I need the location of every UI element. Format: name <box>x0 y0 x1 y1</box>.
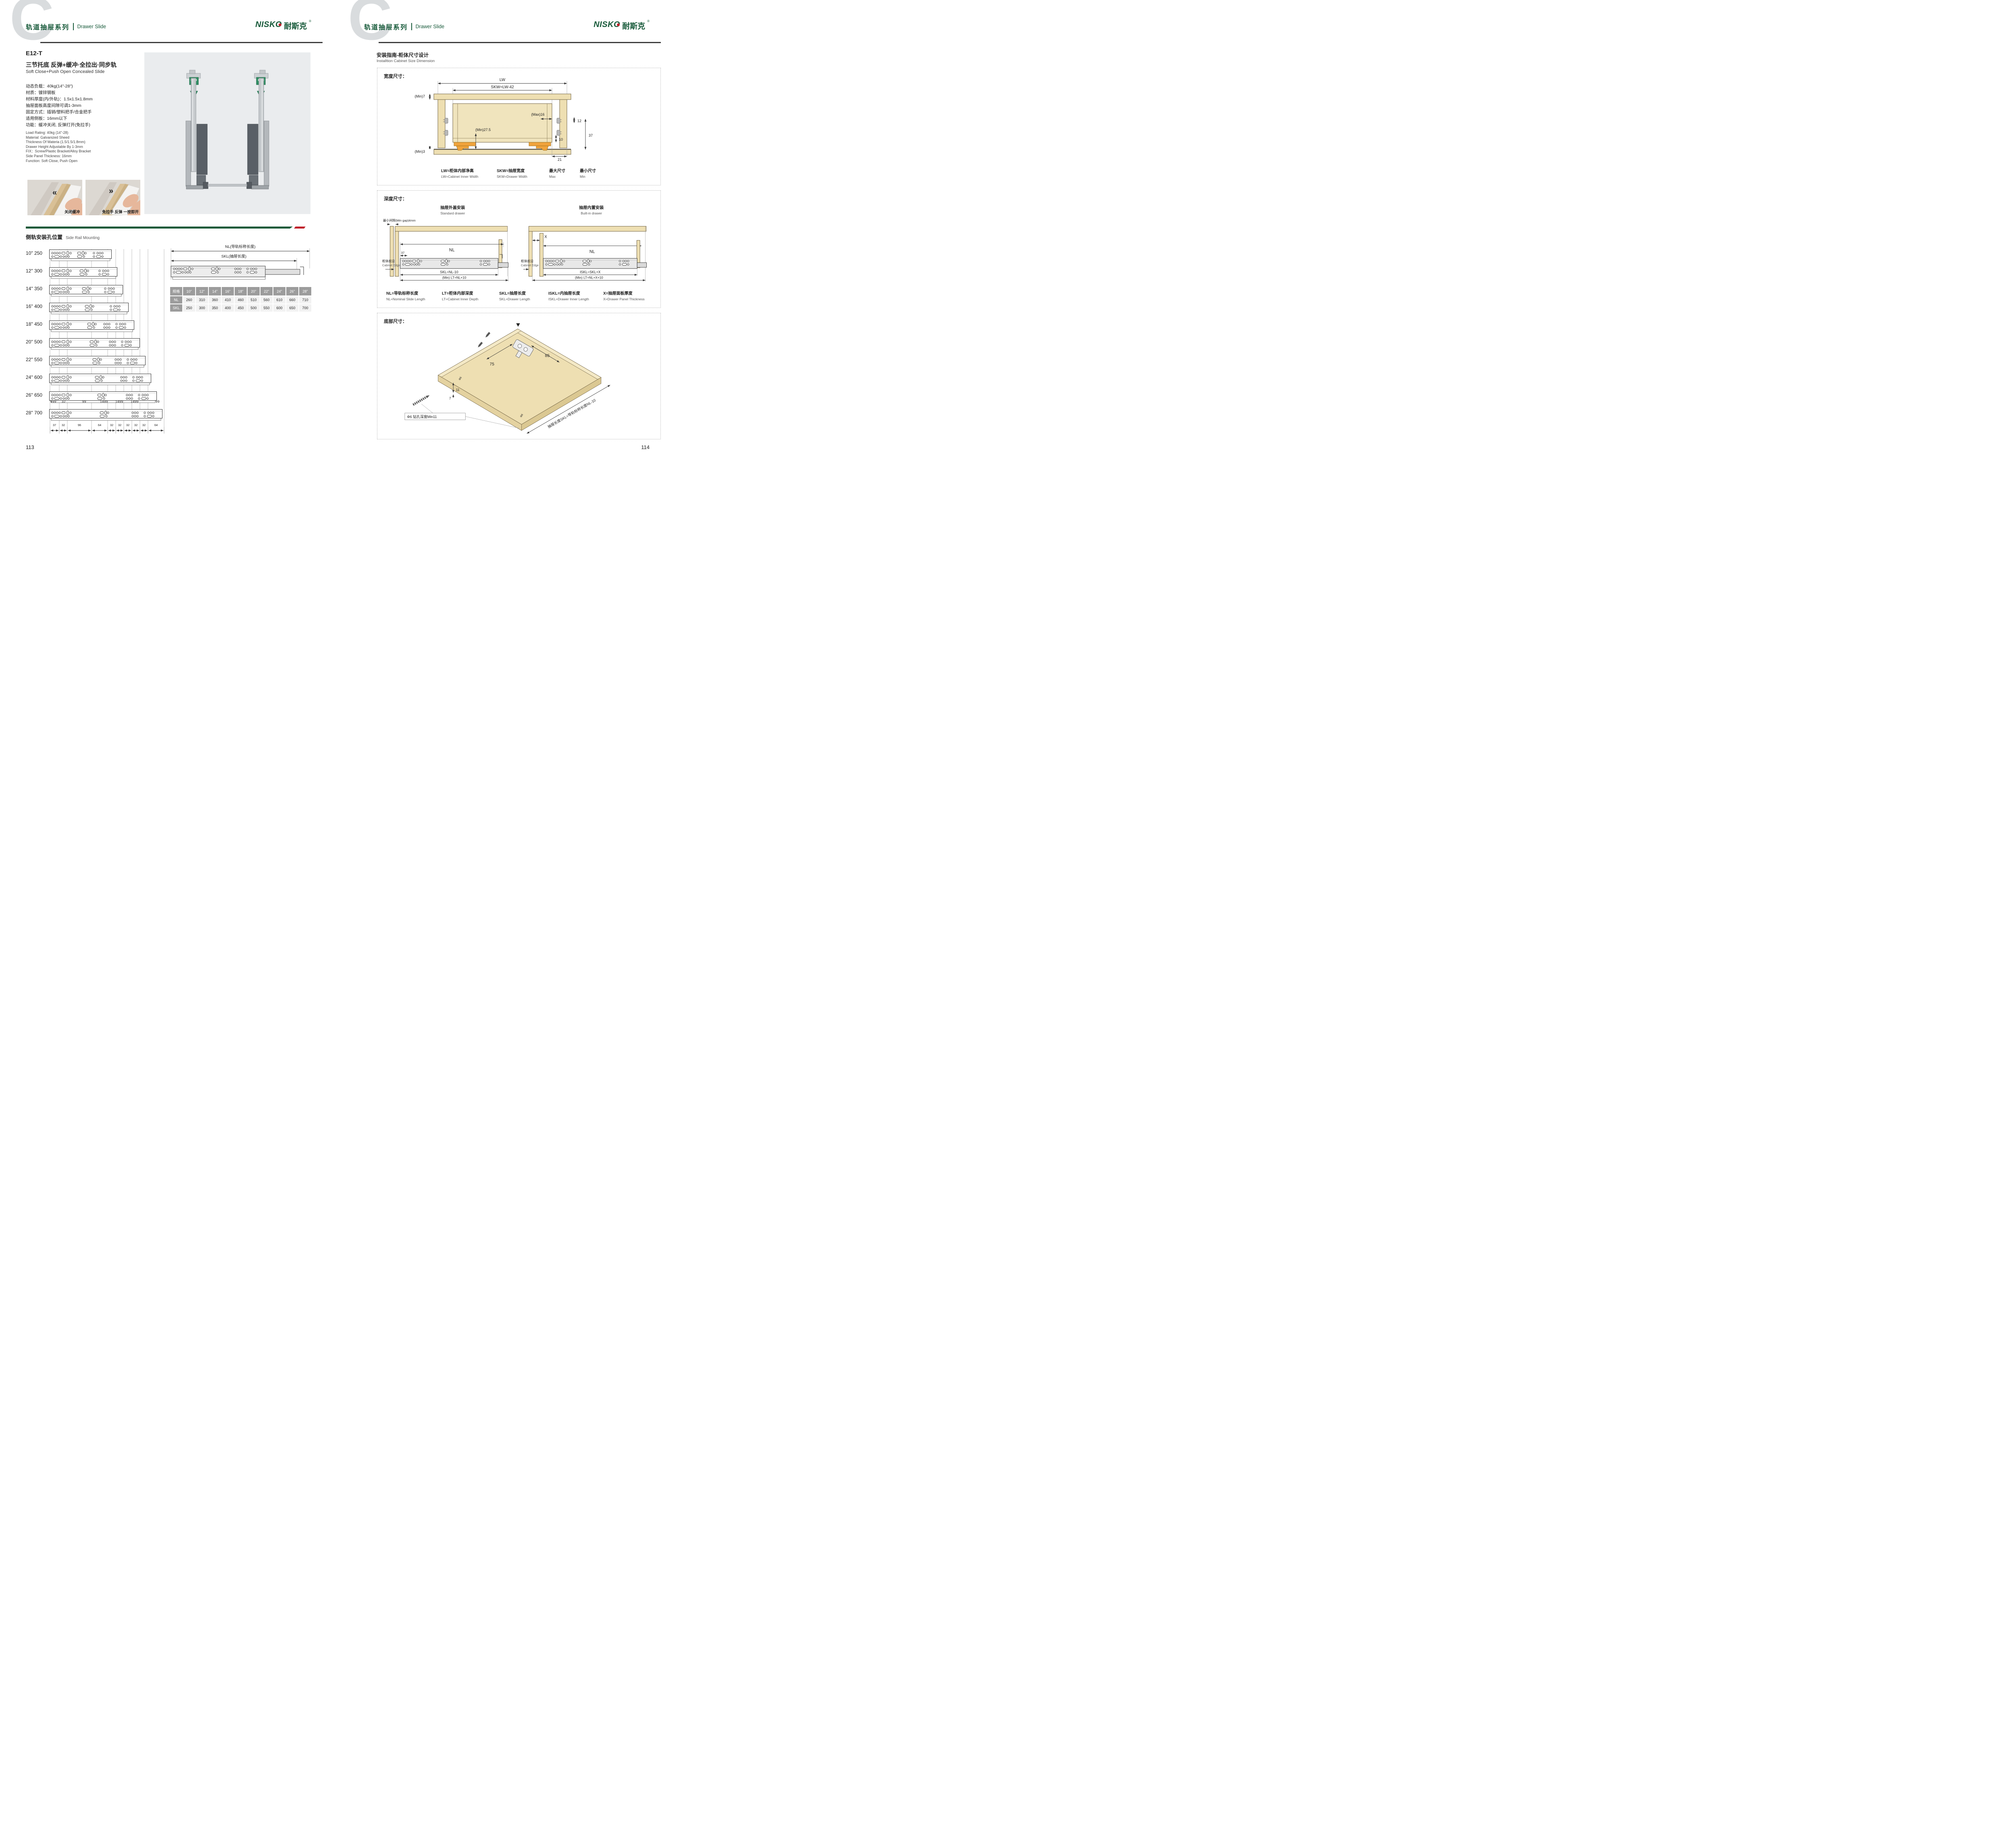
rail-row: 16" 400 <box>26 300 47 316</box>
series-title-en: Drawer Slide <box>77 24 106 29</box>
section-divider-green <box>26 227 293 229</box>
header-series: 轨道抽屉系列 Drawer Slide <box>364 22 444 31</box>
photo-push-open: » 免拉手 反弹 一按即开 <box>85 180 140 215</box>
chevron-left-icon: « <box>52 188 57 197</box>
brand-logo-text: NISKO <box>255 20 282 29</box>
side-rail-title: 侧轨安装孔位置 Side Rail Mounting <box>26 233 100 241</box>
product-name-cn: 三节托底 反弹+缓冲·全拉出·同步轨 <box>26 60 117 69</box>
product-photo <box>144 52 310 214</box>
page-right: C 轨道抽屉系列 Drawer Slide NISKO 耐斯克 ® 安装指南-柜… <box>338 0 676 462</box>
svg-text:7: 7 <box>449 396 451 400</box>
svg-text:32: 32 <box>142 423 146 427</box>
series-title-en: Drawer Slide <box>416 24 445 29</box>
svg-text:Built-in drawer: Built-in drawer <box>581 212 602 215</box>
svg-text:NL: NL <box>589 249 595 254</box>
side-rail-diagram: 10" 250 12" 300 14" 350 16" 400 18" 450 … <box>26 247 171 439</box>
rail-row: 12" 300 <box>26 264 47 281</box>
rail-row: 26" 650 <box>26 389 47 405</box>
svg-text:32: 32 <box>62 423 65 427</box>
depth-size-label: 深度尺寸： <box>384 196 407 202</box>
width-size-box: 宽度尺寸： LW SKW=LW-42 <box>377 68 661 185</box>
header-divider <box>411 23 412 30</box>
direction-arrow-icon <box>516 323 520 327</box>
catalog-spread: C 轨道抽屉系列 Drawer Slide NISKO 耐斯克 ® E12-T … <box>0 0 676 462</box>
svg-text:柜体前沿: 柜体前沿 <box>521 259 533 263</box>
standard-drawer-diagram: 抽屉外盖安装 Standard drawer 最小间隙(Min gap)4mm … <box>382 204 515 284</box>
svg-text:Standard drawer: Standard drawer <box>440 212 465 215</box>
header-rule <box>379 42 661 43</box>
svg-text:10: 10 <box>559 137 563 141</box>
svg-text:37: 37 <box>589 133 593 137</box>
page-number: 114 <box>641 444 650 450</box>
size-spec-table: 规格 10"12" 14"16" 18"20" 22"24" 26"28" NL… <box>169 286 312 312</box>
header-series: 轨道抽屉系列 Drawer Slide <box>26 22 106 31</box>
svg-text:Cabinet Edge: Cabinet Edge <box>382 263 400 267</box>
depth-size-box: 深度尺寸： 抽屉外盖安装 Standard drawer 最小间隙(Min ga… <box>377 190 661 308</box>
bottom-dimensions: 37 32 96 64 32 32 32 32 32 64 <box>49 423 170 435</box>
header-divider <box>73 23 74 30</box>
rail-row: 20" 500 <box>26 335 47 352</box>
brand-logo: NISKO 耐斯克 ® <box>594 20 650 31</box>
page-left: C 轨道抽屉系列 Drawer Slide NISKO 耐斯克 ® E12-T … <box>0 0 338 462</box>
svg-text:SKW=LW-42: SKW=LW-42 <box>491 85 514 89</box>
width-diagram: LW SKW=LW-42 <box>377 77 659 162</box>
builtin-drawer-diagram: 抽屉内置安装 Built-in drawer X NL ISKL= <box>521 204 654 284</box>
photo-caption: 关闭缓冲 <box>65 210 80 214</box>
svg-text:32: 32 <box>126 423 129 427</box>
svg-text:32: 32 <box>118 423 121 427</box>
rail-row: 18" 450 <box>26 318 47 334</box>
bottom-size-box: 底部尺寸： 75 85 11 <box>377 313 661 439</box>
svg-text:64: 64 <box>154 423 158 427</box>
install-guide-title-cn: 安装指南-柜体尺寸设计 <box>377 51 429 58</box>
rail-row: 10" 250 <box>26 247 47 263</box>
specs-en: Load Rating: 40kg (14"-28) Material: Gal… <box>26 131 91 163</box>
svg-text:(Min) LT=NL+X+10: (Min) LT=NL+X+10 <box>575 276 603 279</box>
svg-text:LW: LW <box>500 78 506 82</box>
svg-text:ISKL=SKL+X: ISKL=SKL+X <box>580 270 601 274</box>
product-name-en: Soft Close+Push Open Concealed Slide <box>26 69 104 74</box>
svg-text:11: 11 <box>456 388 460 392</box>
svg-text:Φ6 钻孔深度Min11: Φ6 钻孔深度Min11 <box>407 414 437 419</box>
svg-text:SKL=NL-10: SKL=NL-10 <box>440 270 458 274</box>
registered-mark: ® <box>309 19 311 23</box>
svg-text:75: 75 <box>489 362 494 366</box>
svg-text:12: 12 <box>577 119 581 123</box>
svg-text:32: 32 <box>110 423 113 427</box>
svg-text:(Min)7: (Min)7 <box>414 94 425 98</box>
header-rule <box>40 42 323 43</box>
svg-text:64: 64 <box>98 423 101 427</box>
svg-text:(Max)16: (Max)16 <box>531 112 544 116</box>
section-divider-red <box>294 227 306 229</box>
brand-logo-cn: 耐斯克 <box>284 20 307 31</box>
registered-mark: ® <box>647 19 650 23</box>
svg-text:柜体前沿: 柜体前沿 <box>382 259 395 263</box>
svg-text:21: 21 <box>558 158 562 162</box>
bottom-diagram: 75 85 11 7 Φ6 Φ6 Φ6 钻孔深度Min11 抽屉长度SKL=导轨… <box>393 323 643 437</box>
svg-text:85: 85 <box>545 354 550 358</box>
photo-soft-close: « 关闭缓冲 <box>27 180 82 215</box>
svg-text:96: 96 <box>78 423 81 427</box>
svg-text:32: 32 <box>134 423 137 427</box>
product-model: E12-T <box>26 50 42 57</box>
svg-text:抽屉外盖安装: 抽屉外盖安装 <box>440 205 465 210</box>
brand-logo-cn: 耐斯克 <box>622 20 645 31</box>
series-title-cn: 轨道抽屉系列 <box>364 22 408 31</box>
svg-text:抽屉内置安装: 抽屉内置安装 <box>579 205 604 210</box>
svg-text:(Min) LT=NL+10: (Min) LT=NL+10 <box>442 276 467 279</box>
rail-row: 28" 700 <box>26 406 47 422</box>
svg-text:(Min)3: (Min)3 <box>414 150 425 154</box>
chevron-right-icon: » <box>109 187 113 196</box>
rail-row: 24" 600 <box>26 371 47 387</box>
page-number: 113 <box>26 444 34 450</box>
svg-text:NL(导轨标称长度): NL(导轨标称长度) <box>225 244 255 249</box>
photo-caption: 免拉手 反弹 一按即开 <box>102 210 139 214</box>
series-title-cn: 轨道抽屉系列 <box>26 22 69 31</box>
brand-logo: NISKO 耐斯克 ® <box>255 20 311 31</box>
svg-text:Cabinet Edge: Cabinet Edge <box>521 263 539 267</box>
svg-text:37: 37 <box>401 251 405 254</box>
svg-text:最小间隙(Min gap)4mm: 最小间隙(Min gap)4mm <box>383 218 416 223</box>
svg-text:X: X <box>544 235 547 239</box>
rail-row: 22" 550 <box>26 353 47 369</box>
nl-skl-diagram: NL(导轨标称长度) SKL(抽屉长度) <box>169 243 311 283</box>
brand-logo-text: NISKO <box>594 20 620 29</box>
rail-row: 14" 350 <box>26 282 47 298</box>
svg-text:NL: NL <box>449 248 455 252</box>
specs-cn: 动态负载：40kg(14"-28") 材质：镀锌钢板 材料厚度(内/外轨)：1.… <box>26 83 93 128</box>
svg-text:SKL(抽屉长度): SKL(抽屉长度) <box>221 254 246 259</box>
svg-text:(Min)27.5: (Min)27.5 <box>475 128 491 132</box>
install-guide-title-en: Installtion Cabinet Size Dimension <box>377 59 435 63</box>
svg-text:37: 37 <box>53 423 56 427</box>
